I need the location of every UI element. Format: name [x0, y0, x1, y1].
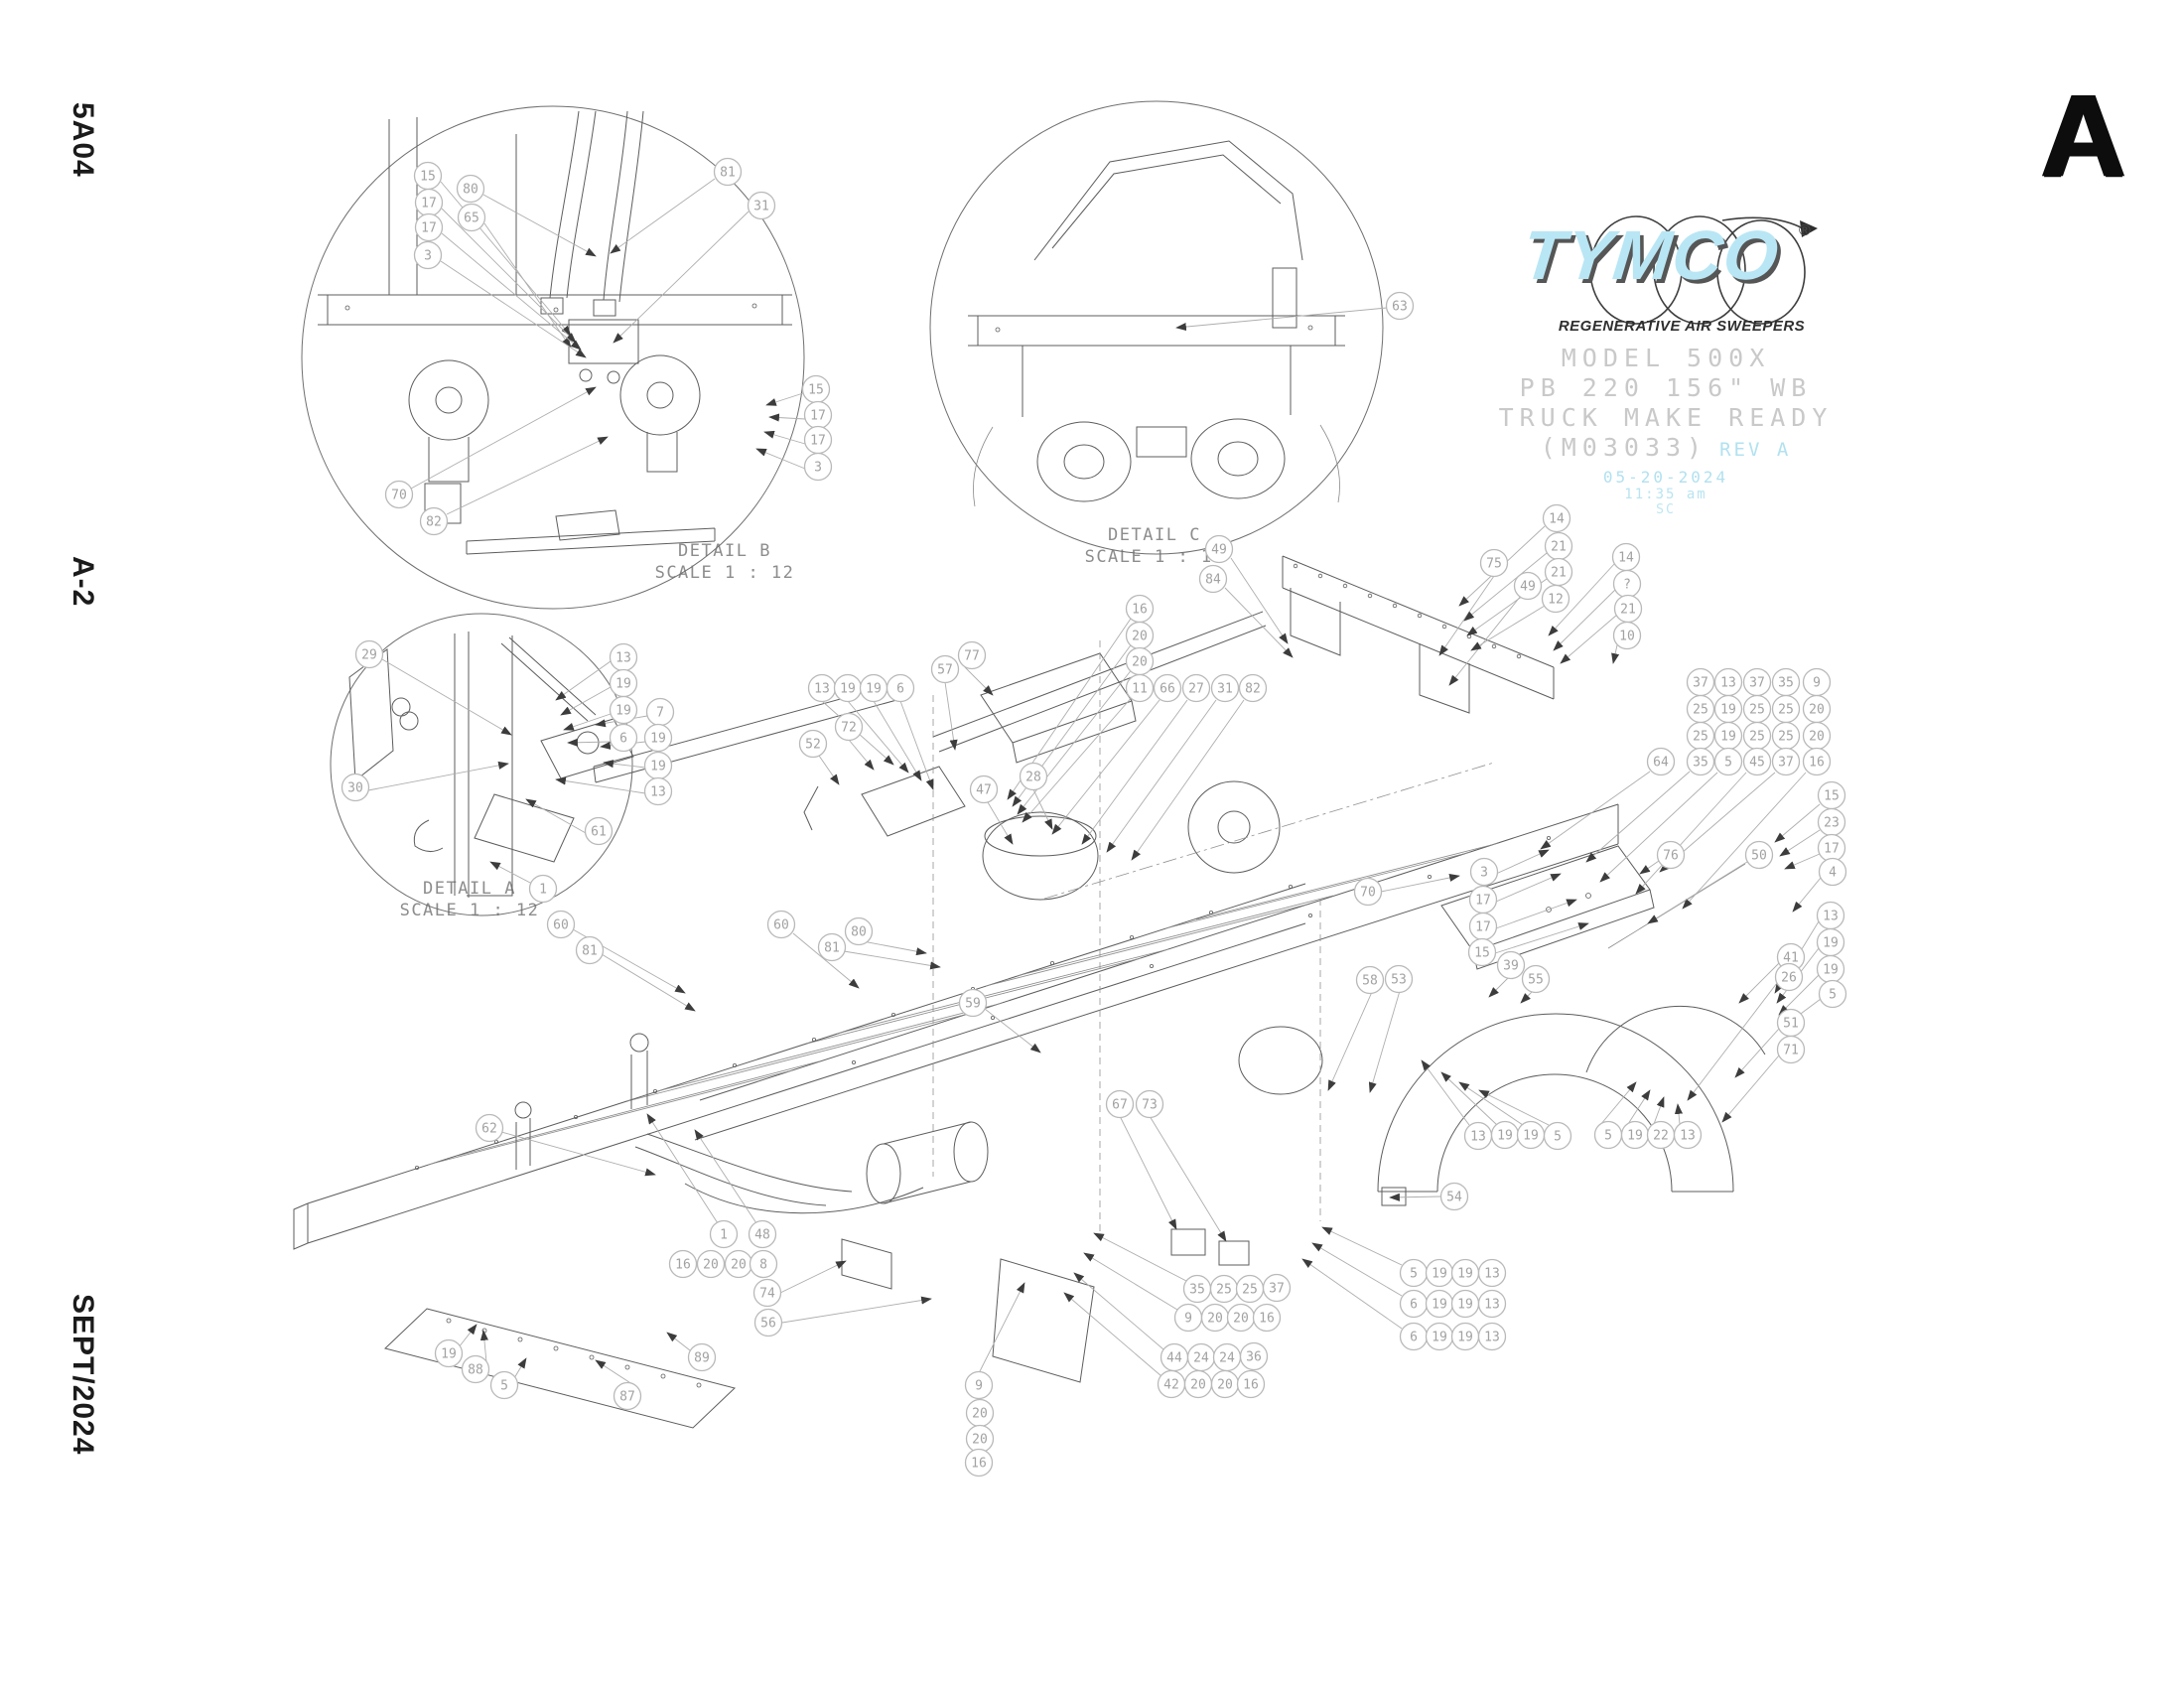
leader-line	[614, 211, 749, 343]
svg-text:25: 25	[1242, 1283, 1258, 1298]
svg-text:21: 21	[1551, 540, 1567, 555]
balloon-13: 13	[1479, 1291, 1506, 1318]
balloon-?: ?	[1614, 571, 1641, 598]
svg-text:65: 65	[464, 211, 479, 226]
balloon-11: 11	[1127, 675, 1154, 702]
leader-line	[782, 1299, 931, 1323]
svg-text:20: 20	[703, 1258, 719, 1273]
balloon-53: 53	[1386, 966, 1413, 993]
svg-text:19: 19	[1457, 1298, 1473, 1313]
balloon-6: 6	[611, 725, 637, 752]
balloon-70: 70	[1355, 879, 1382, 906]
svg-text:9: 9	[1813, 676, 1821, 691]
balloon-6: 6	[1401, 1324, 1428, 1350]
svg-text:19: 19	[1432, 1267, 1447, 1282]
balloon-72: 72	[836, 714, 863, 741]
balloon-25: 25	[1744, 696, 1771, 723]
svg-text:3: 3	[814, 461, 822, 476]
leader-line	[442, 233, 581, 350]
balloon-16: 16	[670, 1251, 697, 1278]
balloon-30: 30	[342, 774, 369, 801]
balloon-20: 20	[1127, 623, 1154, 649]
svg-text:37: 37	[1693, 676, 1708, 691]
svg-text:16: 16	[1132, 603, 1148, 618]
svg-text:14: 14	[1618, 551, 1634, 566]
svg-text:19: 19	[615, 677, 631, 692]
balloon-16: 16	[1238, 1371, 1265, 1398]
svg-text:24: 24	[1219, 1351, 1235, 1366]
balloon-20: 20	[1202, 1305, 1229, 1332]
leader-line	[1064, 1293, 1161, 1376]
leader-line	[1793, 878, 1821, 912]
svg-text:37: 37	[1749, 676, 1765, 691]
svg-text:14: 14	[1549, 512, 1565, 527]
svg-text:80: 80	[851, 925, 867, 940]
balloon-67: 67	[1107, 1091, 1134, 1118]
leader-line	[1052, 700, 1160, 834]
balloon-19: 19	[861, 675, 887, 702]
balloon-5: 5	[1715, 749, 1742, 775]
svg-text:20: 20	[1207, 1312, 1223, 1327]
balloon-15: 15	[1469, 939, 1496, 966]
leader-line	[1600, 1082, 1636, 1125]
leader-line	[1780, 830, 1820, 856]
balloon-21: 21	[1546, 559, 1572, 586]
leader-line	[1312, 1243, 1402, 1296]
leader-line	[526, 799, 586, 833]
svg-text:19: 19	[1497, 1129, 1513, 1144]
svg-text:20: 20	[972, 1433, 988, 1448]
balloon-52: 52	[800, 731, 827, 758]
leader-line	[766, 393, 803, 405]
svg-text:20: 20	[731, 1258, 747, 1273]
svg-text:25: 25	[1693, 703, 1708, 718]
balloon-9: 9	[1175, 1305, 1202, 1332]
svg-text:5: 5	[1829, 988, 1837, 1003]
leader-line	[1370, 991, 1400, 1092]
balloon-9: 9	[1804, 669, 1831, 696]
balloon-20: 20	[1804, 696, 1831, 723]
svg-text:19: 19	[1457, 1331, 1473, 1345]
balloon-84: 84	[1200, 566, 1227, 593]
leader-line	[1328, 992, 1372, 1090]
leader-line	[695, 1130, 756, 1223]
svg-text:44: 44	[1166, 1351, 1182, 1366]
svg-text:23: 23	[1824, 816, 1840, 831]
balloon-1: 1	[530, 876, 557, 903]
svg-text:26: 26	[1781, 971, 1797, 986]
leader-line	[988, 802, 1013, 844]
balloon-81: 81	[715, 159, 742, 186]
balloon-20: 20	[698, 1251, 725, 1278]
balloon-24: 24	[1214, 1344, 1241, 1371]
svg-text:13: 13	[650, 785, 666, 800]
balloon-81: 81	[819, 934, 846, 961]
leader-line	[874, 701, 921, 780]
balloon-13: 13	[611, 644, 637, 671]
svg-text:19: 19	[1823, 963, 1839, 978]
balloon-20: 20	[1804, 723, 1831, 750]
leader-line	[1561, 615, 1617, 663]
balloon-15: 15	[1819, 782, 1845, 809]
svg-text:74: 74	[759, 1287, 775, 1302]
leader-line	[556, 661, 611, 700]
leader-lines	[368, 179, 1821, 1388]
svg-text:19: 19	[840, 682, 856, 697]
leader-line	[1489, 977, 1509, 997]
balloon-19: 19	[645, 725, 672, 752]
balloon-37: 37	[1773, 749, 1800, 775]
balloon-5: 5	[1545, 1123, 1571, 1150]
svg-text:70: 70	[391, 489, 407, 503]
leader-line	[1302, 1259, 1402, 1329]
svg-text:13: 13	[1484, 1331, 1500, 1345]
svg-text:13: 13	[1470, 1130, 1486, 1145]
svg-text:17: 17	[810, 409, 826, 424]
svg-text:16: 16	[1259, 1312, 1275, 1327]
leader-line	[1785, 854, 1820, 869]
balloon-7: 7	[647, 699, 674, 726]
balloon-20: 20	[726, 1251, 752, 1278]
svg-text:82: 82	[1245, 682, 1261, 697]
svg-text:25: 25	[1749, 703, 1765, 718]
svg-text:5: 5	[500, 1379, 508, 1394]
leader-line	[1496, 900, 1576, 928]
svg-text:56: 56	[760, 1317, 776, 1332]
svg-text:35: 35	[1778, 676, 1794, 691]
leader-line	[647, 1114, 718, 1223]
balloon-73: 73	[1137, 1091, 1163, 1118]
balloon-51: 51	[1778, 1010, 1805, 1037]
svg-text:19: 19	[1720, 730, 1736, 745]
leader-line	[1648, 862, 1747, 923]
leader-line	[1722, 1055, 1779, 1122]
leader-line	[1775, 804, 1820, 842]
svg-text:30: 30	[347, 781, 363, 796]
leader-line	[501, 1132, 655, 1175]
svg-text:35: 35	[1693, 756, 1708, 771]
leader-line	[1683, 773, 1806, 909]
svg-text:39: 39	[1503, 959, 1519, 974]
balloon-44: 44	[1161, 1344, 1188, 1371]
balloon-16: 16	[1127, 596, 1154, 623]
balloon-17: 17	[805, 402, 832, 429]
svg-text:37: 37	[1269, 1282, 1285, 1297]
svg-text:17: 17	[1824, 842, 1840, 857]
svg-text:19: 19	[615, 704, 631, 719]
svg-text:16: 16	[971, 1457, 987, 1472]
svg-text:17: 17	[1475, 920, 1491, 935]
leader-line	[1496, 874, 1561, 902]
svg-text:15: 15	[808, 383, 824, 398]
svg-text:28: 28	[1025, 771, 1041, 785]
balloon-19: 19	[645, 753, 672, 779]
svg-text:13: 13	[1680, 1129, 1696, 1144]
balloon-5: 5	[1595, 1122, 1622, 1149]
leader-line	[965, 667, 993, 695]
leader-line	[602, 954, 695, 1011]
balloon-25: 25	[1773, 696, 1800, 723]
svg-text:60: 60	[773, 918, 789, 933]
balloon-5: 5	[1820, 981, 1846, 1008]
balloon-75: 75	[1481, 550, 1508, 577]
svg-text:19: 19	[1432, 1298, 1447, 1313]
balloon-20: 20	[1228, 1305, 1255, 1332]
leader-line	[1496, 850, 1549, 874]
leader-line	[667, 1333, 690, 1350]
svg-text:5: 5	[1554, 1130, 1562, 1145]
svg-text:5: 5	[1724, 756, 1732, 771]
balloon-76: 76	[1658, 842, 1685, 869]
svg-text:6: 6	[619, 732, 627, 747]
balloon-37: 37	[1264, 1275, 1291, 1302]
balloon-49: 49	[1515, 573, 1542, 600]
leader-line	[514, 1358, 526, 1378]
balloon-36: 36	[1241, 1343, 1268, 1370]
balloon-6: 6	[1401, 1291, 1428, 1318]
balloon-13: 13	[1479, 1260, 1506, 1287]
svg-text:19: 19	[441, 1347, 457, 1362]
svg-text:25: 25	[1749, 730, 1765, 745]
balloon-19: 19	[1427, 1260, 1453, 1287]
balloon-29: 29	[356, 641, 383, 668]
leader-line	[483, 1331, 486, 1362]
balloon-15: 15	[803, 376, 830, 403]
svg-text:54: 54	[1446, 1191, 1462, 1205]
svg-text:60: 60	[553, 918, 569, 933]
svg-text:84: 84	[1205, 573, 1221, 588]
svg-text:52: 52	[805, 738, 821, 753]
svg-text:8: 8	[759, 1258, 767, 1273]
balloon-49: 49	[1206, 536, 1233, 563]
leader-line	[1735, 1029, 1779, 1077]
leader-line	[1459, 1082, 1523, 1125]
balloon-65: 65	[459, 205, 485, 231]
balloon-82: 82	[421, 508, 448, 535]
balloon-42: 42	[1159, 1371, 1185, 1398]
balloon-20: 20	[1212, 1371, 1239, 1398]
svg-text:71: 71	[1783, 1044, 1799, 1058]
svg-text:22: 22	[1653, 1129, 1669, 1144]
balloon-13: 13	[1675, 1122, 1702, 1149]
svg-text:42: 42	[1163, 1378, 1179, 1393]
svg-text:13: 13	[615, 651, 631, 666]
leader-line	[368, 764, 508, 790]
balloon-57: 57	[932, 656, 959, 683]
svg-text:19: 19	[1432, 1331, 1447, 1345]
svg-text:73: 73	[1142, 1098, 1158, 1113]
detail-c-view	[930, 101, 1383, 554]
balloon-74: 74	[754, 1280, 781, 1307]
svg-text:19: 19	[1823, 936, 1839, 951]
balloon-60: 60	[548, 912, 575, 938]
svg-text:31: 31	[753, 200, 769, 214]
leader-line	[1422, 1060, 1469, 1125]
leader-line	[1654, 1097, 1664, 1124]
balloon-8: 8	[751, 1251, 777, 1278]
balloon-50: 50	[1746, 842, 1773, 869]
balloon-17: 17	[1470, 914, 1497, 940]
svg-text:6: 6	[896, 682, 904, 697]
balloon-55: 55	[1523, 966, 1550, 993]
balloon-13: 13	[645, 778, 672, 805]
balloon-5: 5	[1401, 1260, 1428, 1287]
svg-text:5: 5	[1604, 1129, 1612, 1144]
svg-text:88: 88	[468, 1363, 483, 1378]
balloon-37: 37	[1744, 669, 1771, 696]
leader-line	[1521, 991, 1533, 1003]
balloon-13: 13	[1818, 903, 1844, 929]
svg-text:19: 19	[650, 760, 666, 774]
balloon-25: 25	[1744, 723, 1771, 750]
svg-text:17: 17	[810, 434, 826, 449]
balloon-35: 35	[1773, 669, 1800, 696]
leader-line	[849, 740, 874, 770]
svg-text:75: 75	[1486, 557, 1502, 572]
balloon-81: 81	[577, 937, 604, 964]
balloon-71: 71	[1778, 1037, 1805, 1063]
svg-text:47: 47	[976, 783, 992, 798]
svg-text:13: 13	[1484, 1267, 1500, 1282]
leader-line	[568, 742, 611, 743]
balloon-31: 31	[749, 193, 775, 219]
balloon-1: 1	[711, 1221, 738, 1248]
balloon-20: 20	[967, 1426, 994, 1453]
balloon-31: 31	[1212, 675, 1239, 702]
leader-line	[900, 701, 933, 789]
balloon-87: 87	[614, 1383, 641, 1410]
main-drawing	[294, 556, 1765, 1428]
leader-line	[604, 763, 645, 768]
svg-text:12: 12	[1548, 593, 1564, 608]
svg-text:16: 16	[1243, 1378, 1259, 1393]
svg-text:20: 20	[1809, 703, 1825, 718]
balloon-25: 25	[1688, 696, 1714, 723]
leader-line	[1678, 1104, 1680, 1124]
svg-text:81: 81	[824, 941, 840, 956]
svg-text:21: 21	[1551, 566, 1567, 581]
balloon-17: 17	[1819, 835, 1845, 862]
leader-line	[1150, 1116, 1226, 1241]
svg-text:20: 20	[1809, 730, 1825, 745]
balloon-16: 16	[966, 1450, 993, 1477]
balloon-6: 6	[887, 675, 914, 702]
svg-text:70: 70	[1360, 886, 1376, 901]
balloon-21: 21	[1615, 596, 1642, 623]
svg-text:66: 66	[1160, 682, 1175, 697]
svg-text:15: 15	[1474, 946, 1490, 961]
balloon-19: 19	[1427, 1324, 1453, 1350]
svg-text:89: 89	[694, 1351, 710, 1366]
balloon-14: 14	[1613, 544, 1640, 571]
leader-line	[1688, 983, 1777, 1100]
leader-line	[441, 182, 571, 336]
leader-line	[490, 862, 532, 884]
leader-line	[441, 261, 586, 357]
balloon-20: 20	[1127, 648, 1154, 675]
svg-text:35: 35	[1189, 1283, 1205, 1298]
leader-line	[1439, 576, 1494, 655]
svg-text:20: 20	[1132, 655, 1148, 670]
balloon-19: 19	[1518, 1122, 1545, 1149]
svg-text:5: 5	[1410, 1267, 1418, 1282]
leader-line	[1381, 876, 1459, 892]
balloon-13: 13	[809, 675, 836, 702]
balloon-80: 80	[846, 918, 873, 945]
balloon-59: 59	[960, 990, 987, 1017]
balloon-19: 19	[1427, 1291, 1453, 1318]
leader-line	[1541, 772, 1650, 849]
balloon-61: 61	[586, 818, 613, 845]
balloon-16: 16	[1254, 1305, 1281, 1332]
balloon-37: 37	[1688, 669, 1714, 696]
balloon-19: 19	[1452, 1291, 1479, 1318]
balloon-13: 13	[1465, 1123, 1492, 1150]
balloon-3: 3	[805, 454, 832, 481]
balloon-15: 15	[415, 163, 442, 190]
svg-text:19: 19	[650, 732, 666, 747]
leader-line	[1176, 308, 1387, 328]
svg-text:64: 64	[1653, 756, 1669, 771]
svg-text:25: 25	[1693, 730, 1708, 745]
svg-text:17: 17	[1475, 894, 1491, 909]
balloon-16: 16	[1804, 749, 1831, 775]
balloon-3: 3	[415, 242, 442, 269]
balloon-58: 58	[1357, 967, 1384, 994]
svg-text:37: 37	[1778, 756, 1794, 771]
balloon-66: 66	[1155, 675, 1181, 702]
leader-line	[1107, 700, 1216, 852]
svg-text:53: 53	[1391, 973, 1407, 988]
svg-text:50: 50	[1751, 849, 1767, 864]
svg-text:48: 48	[754, 1228, 770, 1243]
leader-line	[985, 1009, 1040, 1053]
leader-line	[1390, 1196, 1441, 1197]
svg-text:17: 17	[421, 197, 437, 211]
balloon-47: 47	[971, 776, 998, 803]
svg-text:16: 16	[675, 1258, 691, 1273]
balloon-24: 24	[1188, 1344, 1215, 1371]
leader-line	[459, 1325, 477, 1347]
svg-text:19: 19	[1627, 1129, 1643, 1144]
svg-text:9: 9	[975, 1379, 983, 1394]
leader-line	[945, 682, 955, 750]
leader-line	[1231, 558, 1288, 643]
svg-text:13: 13	[814, 682, 830, 697]
leader-line	[979, 1283, 1024, 1373]
svg-text:81: 81	[582, 944, 598, 959]
balloon-19: 19	[1622, 1122, 1649, 1149]
drawing-sheet: 5A04 A-2 SEPT/2024 A TYMCO ® REGENERATIV…	[0, 0, 2184, 1688]
leader-line	[819, 756, 839, 784]
balloon-63: 63	[1387, 293, 1414, 320]
svg-text:80: 80	[463, 183, 478, 198]
balloon-3: 3	[1471, 859, 1498, 886]
balloon-60: 60	[768, 912, 795, 938]
svg-text:9: 9	[1184, 1312, 1192, 1327]
svg-text:31: 31	[1217, 682, 1233, 697]
svg-text:59: 59	[965, 997, 981, 1012]
balloon-88: 88	[463, 1356, 489, 1383]
balloon-70: 70	[386, 482, 413, 508]
leader-line	[1479, 1090, 1549, 1125]
balloon-35: 35	[1688, 749, 1714, 775]
balloon-19: 19	[1452, 1260, 1479, 1287]
svg-text:?: ?	[1623, 578, 1631, 593]
svg-text:15: 15	[1824, 789, 1840, 804]
svg-text:15: 15	[420, 170, 436, 185]
svg-text:3: 3	[424, 249, 432, 264]
